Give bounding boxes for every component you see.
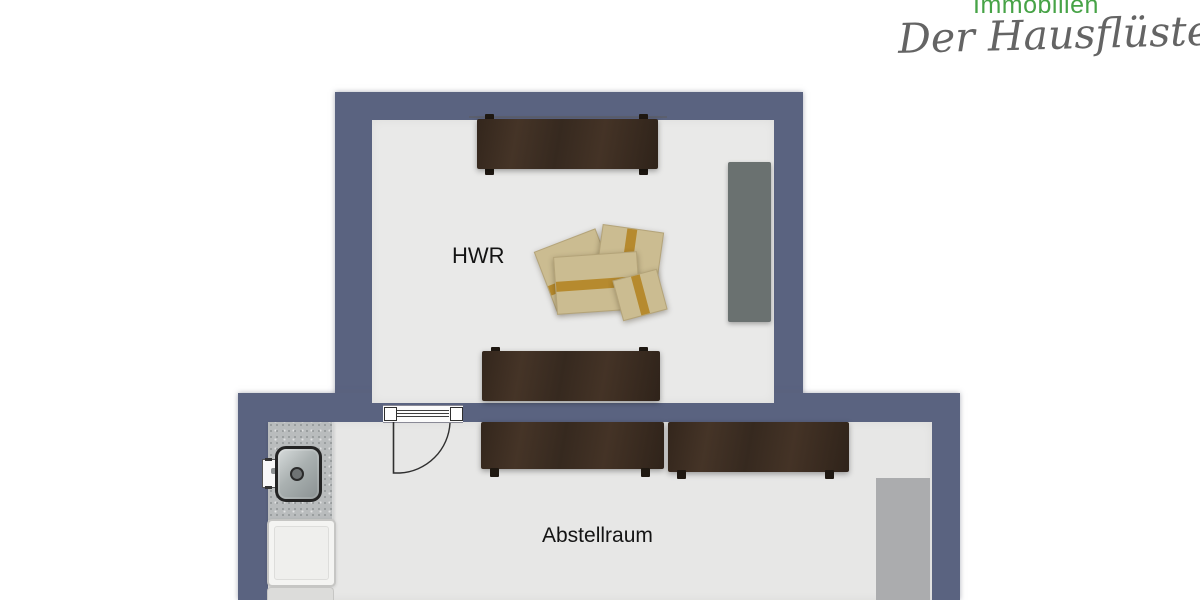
room-label-hwr: HWR (452, 243, 505, 269)
floor-plan-page: Immobilien Der Hausflüsterer HWR (0, 0, 1200, 600)
shelf-board (481, 422, 664, 469)
room-label-abstellraum: Abstellraum (542, 524, 653, 548)
appliance-top-view (267, 519, 336, 587)
shelf-board (477, 119, 658, 169)
wall-shelf-top (477, 114, 658, 175)
shelf-foot (825, 470, 834, 479)
storage-shelf-right (668, 422, 849, 480)
brand-tagline: Der Hausflüsterer (897, 3, 1200, 65)
sink-drain (290, 467, 304, 481)
wall-shelf-bottom (482, 347, 660, 404)
appliance-lower (267, 587, 334, 600)
shelf-board (482, 351, 660, 401)
faucet-handle (265, 458, 272, 461)
appliance-lid (274, 526, 329, 580)
sink-basin (275, 446, 322, 502)
storage-shelf-left (481, 422, 664, 478)
shelf-foot (490, 468, 499, 477)
tape-stripe (631, 274, 650, 315)
tall-cabinet (728, 162, 771, 322)
moving-boxes-group (543, 228, 665, 320)
shelf-foot (641, 468, 650, 477)
interior-door (383, 403, 463, 483)
storage-block (876, 478, 930, 600)
faucet-handle (265, 486, 272, 489)
door-leaf-arc (383, 403, 463, 483)
sink (262, 445, 320, 498)
shelf-board (668, 422, 849, 472)
shelf-foot (677, 470, 686, 479)
